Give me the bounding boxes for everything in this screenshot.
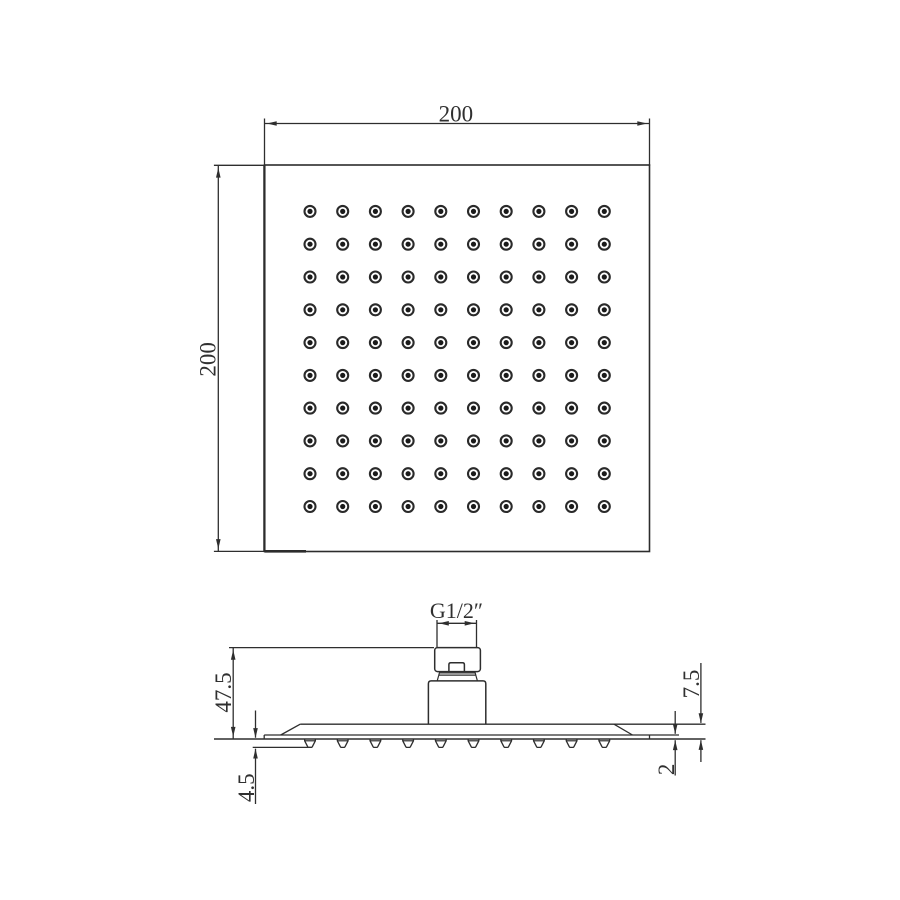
svg-text:7.5: 7.5 bbox=[679, 670, 704, 699]
svg-text:47.5: 47.5 bbox=[211, 672, 236, 712]
svg-text:200: 200 bbox=[196, 342, 221, 377]
svg-text:G1/2″: G1/2″ bbox=[430, 598, 483, 623]
svg-text:200: 200 bbox=[439, 101, 474, 126]
svg-text:4.5: 4.5 bbox=[234, 773, 259, 802]
svg-text:2: 2 bbox=[654, 764, 679, 776]
